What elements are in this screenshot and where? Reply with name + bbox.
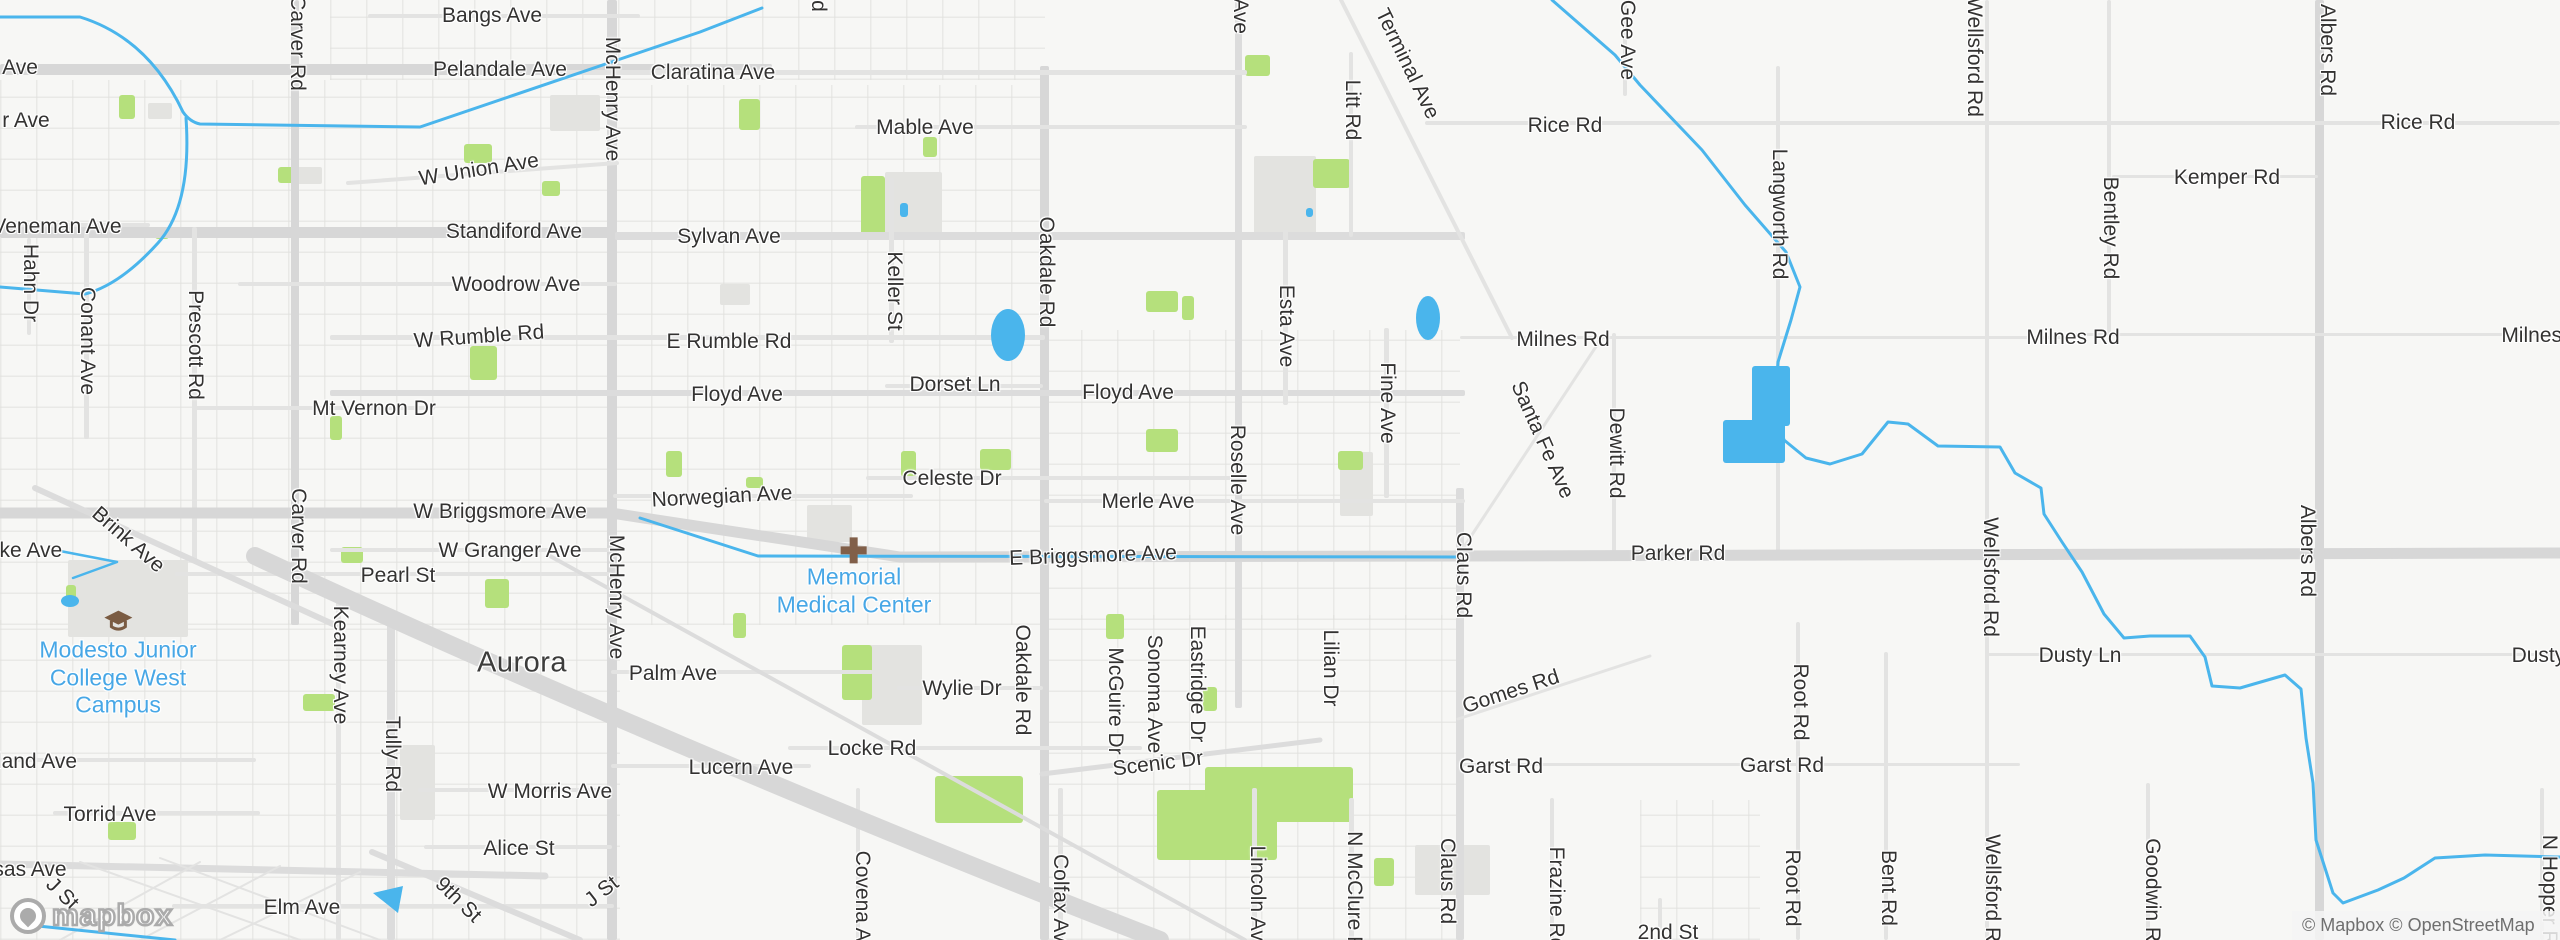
street-label: Prescott Rd	[183, 290, 207, 400]
street-label: r Ave	[2, 109, 49, 133]
street-label: Hahn Dr	[18, 244, 42, 322]
street-label: Rice Rd	[1528, 114, 1603, 138]
street-label: Ave	[2, 56, 38, 80]
street-label: McGee Ave	[1615, 0, 1639, 80]
street-label: Locke Rd	[828, 737, 917, 761]
street-label: Ave	[1228, 0, 1252, 34]
street-label: Parker Rd	[1631, 542, 1726, 566]
street-label: Albers Rd	[2295, 505, 2319, 597]
street-label: Oakdale Rd	[1010, 625, 1034, 736]
street-label: Litt Rd	[1340, 80, 1364, 141]
street-label: Standiford Ave	[446, 220, 582, 244]
street-label: Norwegian Ave	[651, 481, 793, 512]
street-label: E Rumble Rd	[667, 330, 792, 354]
street-label: Langworth Rd	[1767, 149, 1791, 280]
attribution-text: © Mapbox © OpenStreetMap	[2302, 915, 2535, 936]
street-label: Roselle Ave	[1225, 425, 1249, 536]
street-label: J St	[580, 871, 623, 912]
poi-label: Modesto JuniorCollege WestCampus	[39, 609, 196, 720]
street-label: Wellsford Rd	[1978, 517, 2002, 637]
street-label: Keller St	[882, 251, 906, 330]
poi-label-line: Memorial	[777, 563, 932, 591]
street-label: Colfax Ave	[1048, 854, 1072, 940]
street-label: Wellsford Rd	[1980, 834, 2004, 940]
street-label: Bentley Rd	[2098, 177, 2122, 280]
street-label: W Union Ave	[417, 149, 540, 192]
street-label: Tully Rd	[380, 716, 404, 792]
street-label: Floyd Ave	[691, 383, 783, 407]
street-label: 9th St	[430, 872, 486, 927]
street-label: Carver Rd	[286, 488, 310, 584]
labels-layer: Bangs AvePelandale AveClaratina AveAver …	[0, 0, 2560, 940]
street-label: N McClure Rd	[1342, 831, 1366, 940]
poi-label-line: Medical Center	[777, 591, 932, 619]
street-label: Albers Rd	[2315, 4, 2339, 96]
street-label: W Morris Ave	[488, 780, 612, 804]
poi-label-line: College West	[39, 664, 196, 692]
street-label: Garst Rd	[1740, 754, 1824, 778]
street-label: Garst Rd	[1459, 755, 1543, 779]
street-label: Dusty Ln	[2512, 644, 2560, 668]
street-label: Bent Rd	[1876, 850, 1900, 926]
street-label: Mt Vernon Dr	[312, 397, 436, 421]
street-label: McHenry Ave	[600, 37, 624, 162]
street-label: Goodwin Rd	[2140, 838, 2164, 940]
street-label: ake Ave	[0, 539, 62, 563]
street-label: Root Rd	[1788, 663, 1812, 740]
street-label: Claus Rd	[1435, 838, 1459, 924]
poi-label-line: Modesto Junior	[39, 637, 196, 665]
street-label: Esta Ave	[1274, 285, 1298, 368]
street-label: Terminal Ave	[1370, 5, 1444, 123]
street-label: Gomes Rd	[1460, 665, 1563, 719]
street-label: Dewitt Rd	[1604, 407, 1628, 498]
school-icon	[103, 609, 133, 635]
street-label: Lincoln Ave	[1245, 845, 1269, 940]
street-label: Kemper Rd	[2174, 166, 2280, 190]
street-label: Celeste Dr	[902, 467, 1001, 491]
street-label: Veneman Ave	[0, 215, 122, 239]
street-label: Claratina Ave	[651, 61, 776, 85]
place-label: Aurora	[477, 647, 567, 680]
street-label: Milnes Rd	[1516, 328, 1609, 352]
street-label: Rice Rd	[2381, 111, 2456, 135]
attribution-bar[interactable]: © Mapbox © OpenStreetMap	[2292, 911, 2560, 940]
street-label: Conant Ave	[75, 287, 99, 395]
street-label: Covena Ave	[850, 851, 874, 940]
street-label: Brink Ave	[87, 502, 169, 578]
street-label: Lilian Dr	[1318, 629, 1342, 706]
street-label: Sylvan Ave	[677, 225, 781, 249]
street-label: Kearney Ave	[328, 606, 352, 725]
street-label: Bangs Ave	[442, 4, 542, 28]
street-label: 2nd St	[1638, 921, 1699, 940]
street-label: Dorset Ln	[909, 373, 1000, 397]
mapbox-wordmark: mapbox	[52, 899, 173, 933]
street-label: E Briggsmore Ave	[1009, 541, 1177, 571]
hospital-cross-icon	[839, 535, 869, 561]
street-label: Carver Rd	[285, 0, 309, 91]
street-label: Eastridge Dr	[1185, 626, 1209, 743]
street-label: McHenry Ave	[604, 535, 628, 660]
street-label: W Rumble Rd	[413, 320, 545, 353]
street-label: Merle Ave	[1102, 490, 1195, 514]
street-label: Pelandale Ave	[433, 58, 567, 82]
street-label: Palm Ave	[629, 662, 717, 686]
street-label: W Briggsmore Ave	[413, 500, 587, 524]
mapbox-logo[interactable]: mapbox	[10, 898, 173, 934]
map-canvas[interactable]: Bangs AvePelandale AveClaratina AveAver …	[0, 0, 2560, 940]
street-label: Wylie Dr	[922, 677, 1001, 701]
street-label: Dusty Ln	[2039, 644, 2122, 668]
street-label: Floyd Ave	[1082, 381, 1174, 405]
street-label: Mable Ave	[876, 116, 974, 140]
street-label: Sonoma Ave	[1142, 635, 1166, 754]
street-label: W Granger Ave	[438, 539, 581, 563]
poi-label: MemorialMedical Center	[777, 535, 932, 618]
street-label: Milnes Rd	[2501, 324, 2560, 348]
street-label: Wellsford Rd	[1962, 0, 1986, 117]
street-label: Claus Rd	[1451, 532, 1475, 618]
street-label: Oakdale Rd	[1034, 217, 1058, 328]
street-label: d	[806, 0, 830, 12]
street-label: Frazine Rd	[1544, 847, 1568, 940]
street-label: Milnes Rd	[2026, 326, 2119, 350]
mapbox-logo-icon	[10, 898, 46, 934]
street-label: Root Rd	[1780, 849, 1804, 926]
street-label: Lucern Ave	[689, 756, 794, 780]
street-label: Elm Ave	[264, 896, 341, 920]
street-label: McGuire Dr	[1103, 647, 1127, 754]
street-label: Woodrow Ave	[452, 273, 581, 297]
street-label: Alice St	[483, 837, 554, 861]
street-label: Pearl St	[361, 564, 436, 588]
street-label: land Ave	[0, 750, 77, 774]
street-label: Fine Ave	[1375, 362, 1399, 443]
street-label: Santa Fe Ave	[1505, 378, 1578, 503]
poi-label-line: Campus	[39, 692, 196, 720]
street-label: Torrid Ave	[64, 803, 157, 827]
